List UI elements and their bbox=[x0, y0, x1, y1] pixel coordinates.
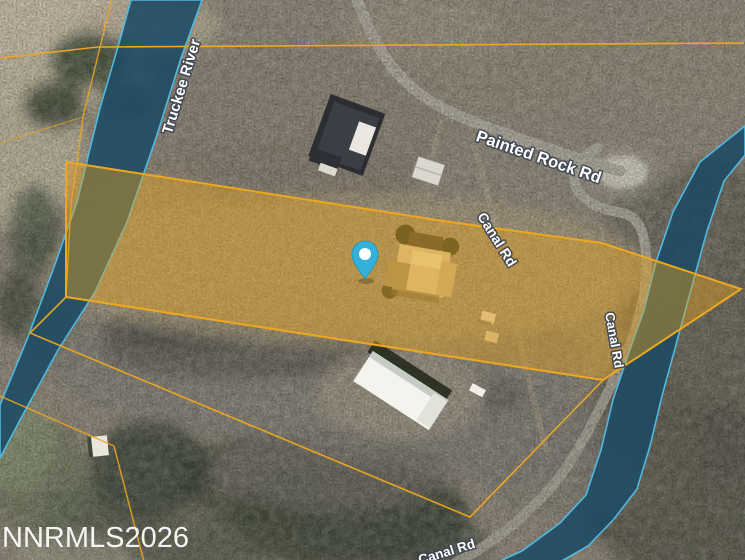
mls-watermark: NNRMLS2026 bbox=[2, 522, 189, 554]
map-canvas[interactable]: Truckee River Painted Rock Rd Canal Rd C… bbox=[0, 0, 745, 560]
pin-shadow bbox=[358, 278, 374, 284]
pin-center-dot bbox=[359, 248, 371, 260]
satellite-map-view[interactable]: Truckee River Painted Rock Rd Canal Rd C… bbox=[0, 0, 745, 560]
